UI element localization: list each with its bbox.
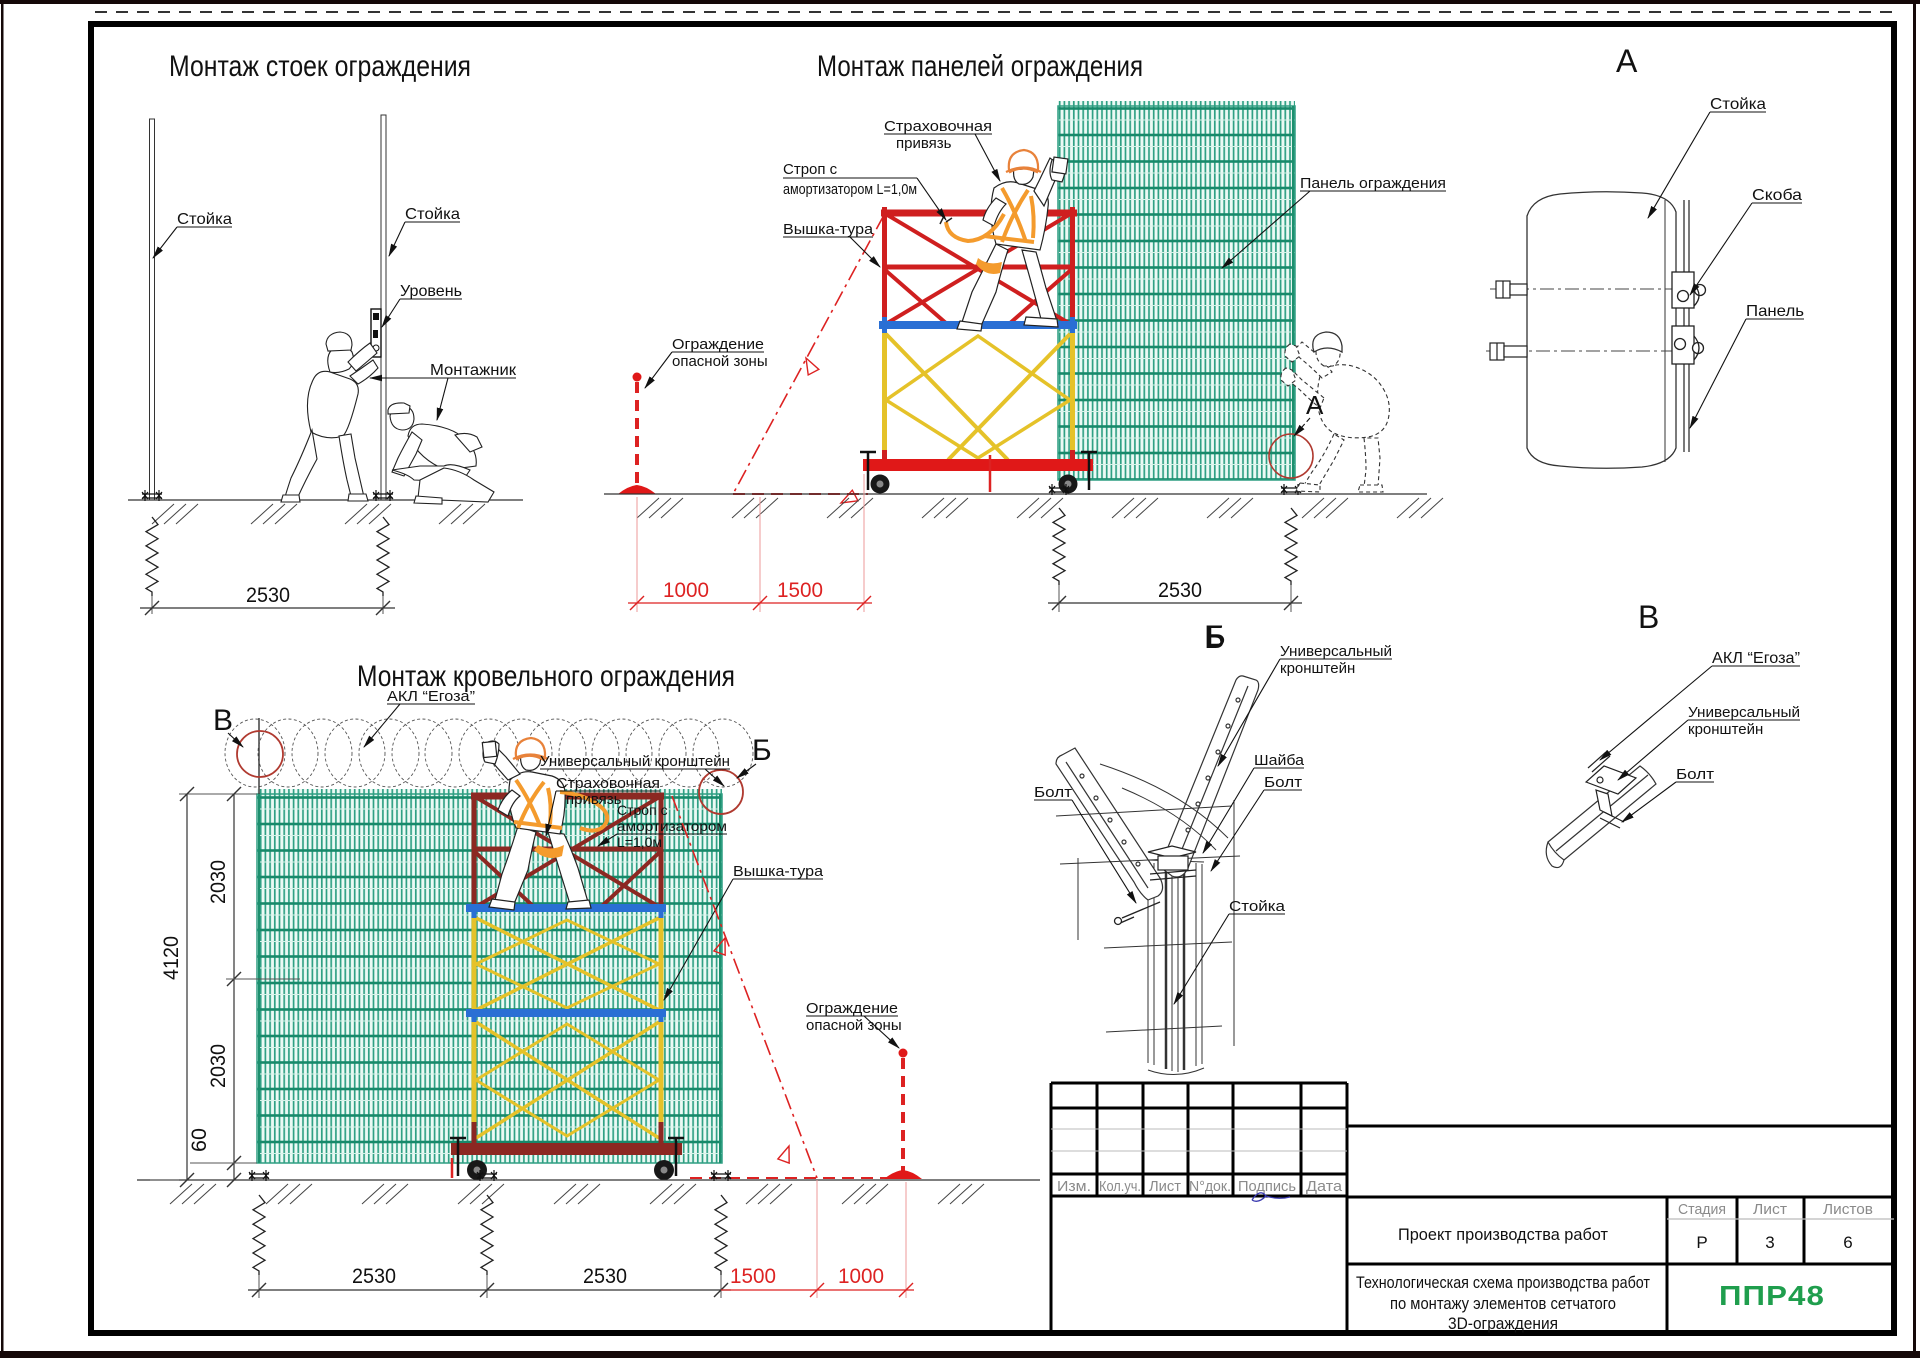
svg-text:2530: 2530	[583, 1265, 627, 1288]
svg-text:1000: 1000	[838, 1265, 884, 1288]
svg-text:Б: Б	[1204, 619, 1225, 655]
svg-text:Болт: Болт	[1676, 766, 1714, 783]
svg-text:L=1,0м: L=1,0м	[617, 834, 662, 850]
svg-text:АКЛ “Егоза”: АКЛ “Егоза”	[1712, 650, 1800, 667]
svg-text:Вышка-тура: Вышка-тура	[783, 221, 874, 238]
svg-text:Вышка-тура: Вышка-тура	[733, 863, 824, 880]
svg-text:привязь: привязь	[566, 791, 622, 808]
svg-text:Р: Р	[1696, 1233, 1707, 1252]
svg-text:Шайба: Шайба	[1254, 752, 1305, 769]
svg-text:кронштейн: кронштейн	[1280, 660, 1355, 677]
svg-text:АКЛ “Егоза”: АКЛ “Егоза”	[387, 688, 475, 705]
svg-text:ППР48: ППР48	[1719, 1280, 1825, 1311]
svg-text:Монтажник: Монтажник	[430, 362, 517, 379]
svg-text:60: 60	[188, 1128, 211, 1152]
svg-text:В: В	[1638, 599, 1659, 635]
svg-text:Монтаж панелей ограждения: Монтаж панелей ограждения	[817, 50, 1143, 83]
svg-text:Универсальный кронштейн: Универсальный кронштейн	[540, 753, 730, 770]
svg-text:Ограждение: Ограждение	[672, 336, 764, 353]
svg-text:амортизатором L=1,0м: амортизатором L=1,0м	[783, 181, 917, 198]
svg-text:Уровень: Уровень	[400, 283, 462, 300]
svg-text:Проект производства работ: Проект производства работ	[1398, 1225, 1608, 1244]
svg-text:N°док.: N°док.	[1189, 1178, 1231, 1195]
svg-text:2030: 2030	[207, 1044, 230, 1088]
svg-text:Лист: Лист	[1753, 1201, 1787, 1218]
svg-text:1500: 1500	[730, 1265, 776, 1288]
svg-text:Универсальный: Универсальный	[1688, 704, 1800, 721]
svg-text:Стойка: Стойка	[177, 211, 232, 228]
svg-text:3D-ограждения: 3D-ограждения	[1448, 1314, 1558, 1333]
svg-text:Панель ограждения: Панель ограждения	[1300, 175, 1446, 192]
svg-text:амортизатором: амортизатором	[617, 818, 727, 834]
svg-text:Подпись: Подпись	[1238, 1178, 1296, 1195]
svg-text:привязь: привязь	[896, 135, 952, 152]
svg-text:1000: 1000	[663, 579, 709, 602]
svg-text:Изм.: Изм.	[1057, 1178, 1091, 1195]
svg-text:кронштейн: кронштейн	[1688, 721, 1763, 738]
svg-text:Стойка: Стойка	[405, 206, 460, 223]
svg-text:опасной зоны: опасной зоны	[672, 353, 768, 370]
svg-text:Страховочная: Страховочная	[556, 775, 660, 792]
svg-text:Листов: Листов	[1823, 1201, 1873, 1218]
svg-text:Универсальный: Универсальный	[1280, 643, 1392, 660]
svg-text:Страховочная: Страховочная	[884, 118, 992, 135]
svg-text:2530: 2530	[246, 584, 290, 607]
svg-text:2530: 2530	[352, 1265, 396, 1288]
svg-text:Стойка: Стойка	[1229, 898, 1286, 915]
svg-text:Дата: Дата	[1306, 1178, 1343, 1195]
svg-text:А: А	[1306, 390, 1324, 420]
svg-text:Кол.уч.: Кол.уч.	[1099, 1178, 1141, 1195]
svg-text:Строп с: Строп с	[617, 802, 668, 818]
svg-text:1500: 1500	[777, 579, 823, 602]
svg-text:Строп с: Строп с	[783, 161, 838, 178]
svg-text:4120: 4120	[160, 936, 183, 980]
svg-text:Болт: Болт	[1034, 784, 1072, 801]
svg-text:Стойка: Стойка	[1710, 96, 1766, 113]
svg-text:Б: Б	[752, 734, 772, 767]
svg-text:Технологическая схема производ: Технологическая схема производства работ	[1356, 1273, 1650, 1292]
svg-text:6: 6	[1843, 1233, 1852, 1252]
svg-text:по монтажу элементов сетчатого: по монтажу элементов сетчатого	[1390, 1294, 1616, 1313]
svg-text:Лист: Лист	[1149, 1178, 1181, 1195]
svg-text:А: А	[1616, 43, 1638, 79]
svg-text:Панель: Панель	[1746, 303, 1804, 320]
svg-text:Ограждение: Ограждение	[806, 1000, 898, 1017]
svg-text:Скоба: Скоба	[1752, 187, 1802, 204]
svg-text:опасной зоны: опасной зоны	[806, 1017, 902, 1034]
svg-text:2530: 2530	[1158, 579, 1202, 602]
svg-text:3: 3	[1765, 1233, 1774, 1252]
svg-text:В: В	[213, 704, 233, 737]
svg-text:Стадия: Стадия	[1678, 1201, 1726, 1218]
svg-text:2030: 2030	[207, 860, 230, 904]
svg-text:Болт: Болт	[1264, 774, 1302, 791]
svg-text:Монтаж стоек ограждения: Монтаж стоек ограждения	[169, 50, 471, 83]
